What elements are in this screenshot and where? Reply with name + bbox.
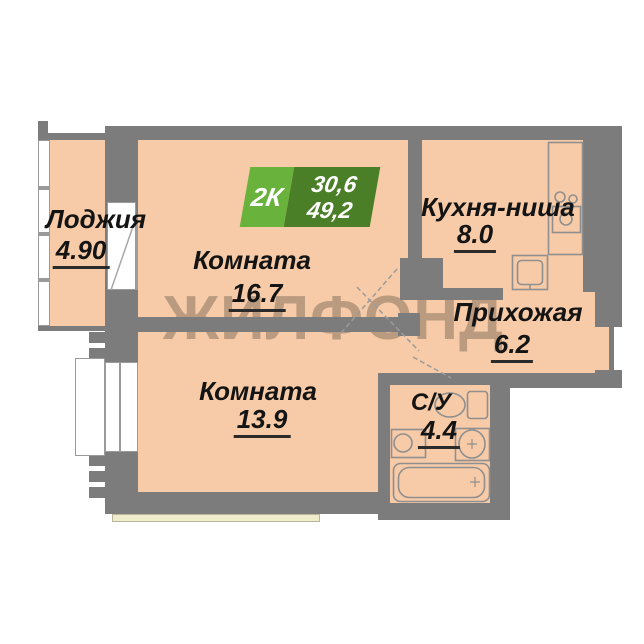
corner-mark [38,121,48,134]
badge-type-label: 2К [249,182,285,213]
wall-divider-cap [398,313,420,336]
room2-area: 13.9 [234,406,291,433]
wall-right-upper [583,140,622,292]
window-frame-tick [39,186,49,190]
facade-tooth [89,455,105,466]
bathroom-label: С/У [411,390,451,415]
wall-bath-right [490,373,510,520]
apartment-badge: 2К 30,6 49,2 [240,167,381,227]
loggia-label: Лоджия [46,206,146,233]
badge-living-area: 30,6 [310,171,359,197]
window-frame-line [119,363,121,451]
hallway-label: Прихожая [453,299,582,326]
wall-bath-left [378,373,390,520]
room2-label: Комната [199,378,317,405]
wall-stub [400,258,443,300]
floor-plan: ЖИЛФОНД [0,0,644,644]
wall-hall-right-up [595,292,622,327]
wall-hall-bottom [497,373,622,388]
window-frame-tick [39,278,49,282]
wall-bath-top [378,373,497,385]
wall-loggia-bottom [38,326,105,331]
loggia-area: 4.90 [53,237,110,264]
room1-area: 16.7 [229,280,286,307]
facade-tooth [89,332,105,343]
balcony-slab-strip [112,514,320,522]
wall-rooms-divider [138,317,420,332]
left-window [105,362,138,452]
facade-tooth [89,487,105,498]
wall-kitchen-left [408,140,422,258]
wall-bath-bottom [378,503,510,520]
exterior-bay-box [75,358,105,456]
facade-tooth [89,471,105,482]
badge-areas-cell: 30,6 49,2 [284,167,381,227]
wall-loggia-top [38,133,105,140]
kitchen-label: Кухня-ниша [421,194,575,221]
hallway-area: 6.2 [491,331,533,358]
badge-total-area: 49,2 [305,197,354,223]
wall-top [105,126,622,140]
room1-label: Комната [193,247,311,274]
kitchen-area: 8.0 [454,221,496,248]
entrance-door-leaf [609,327,614,370]
wall-bottom [105,492,390,514]
bathroom-area: 4.4 [418,417,460,444]
